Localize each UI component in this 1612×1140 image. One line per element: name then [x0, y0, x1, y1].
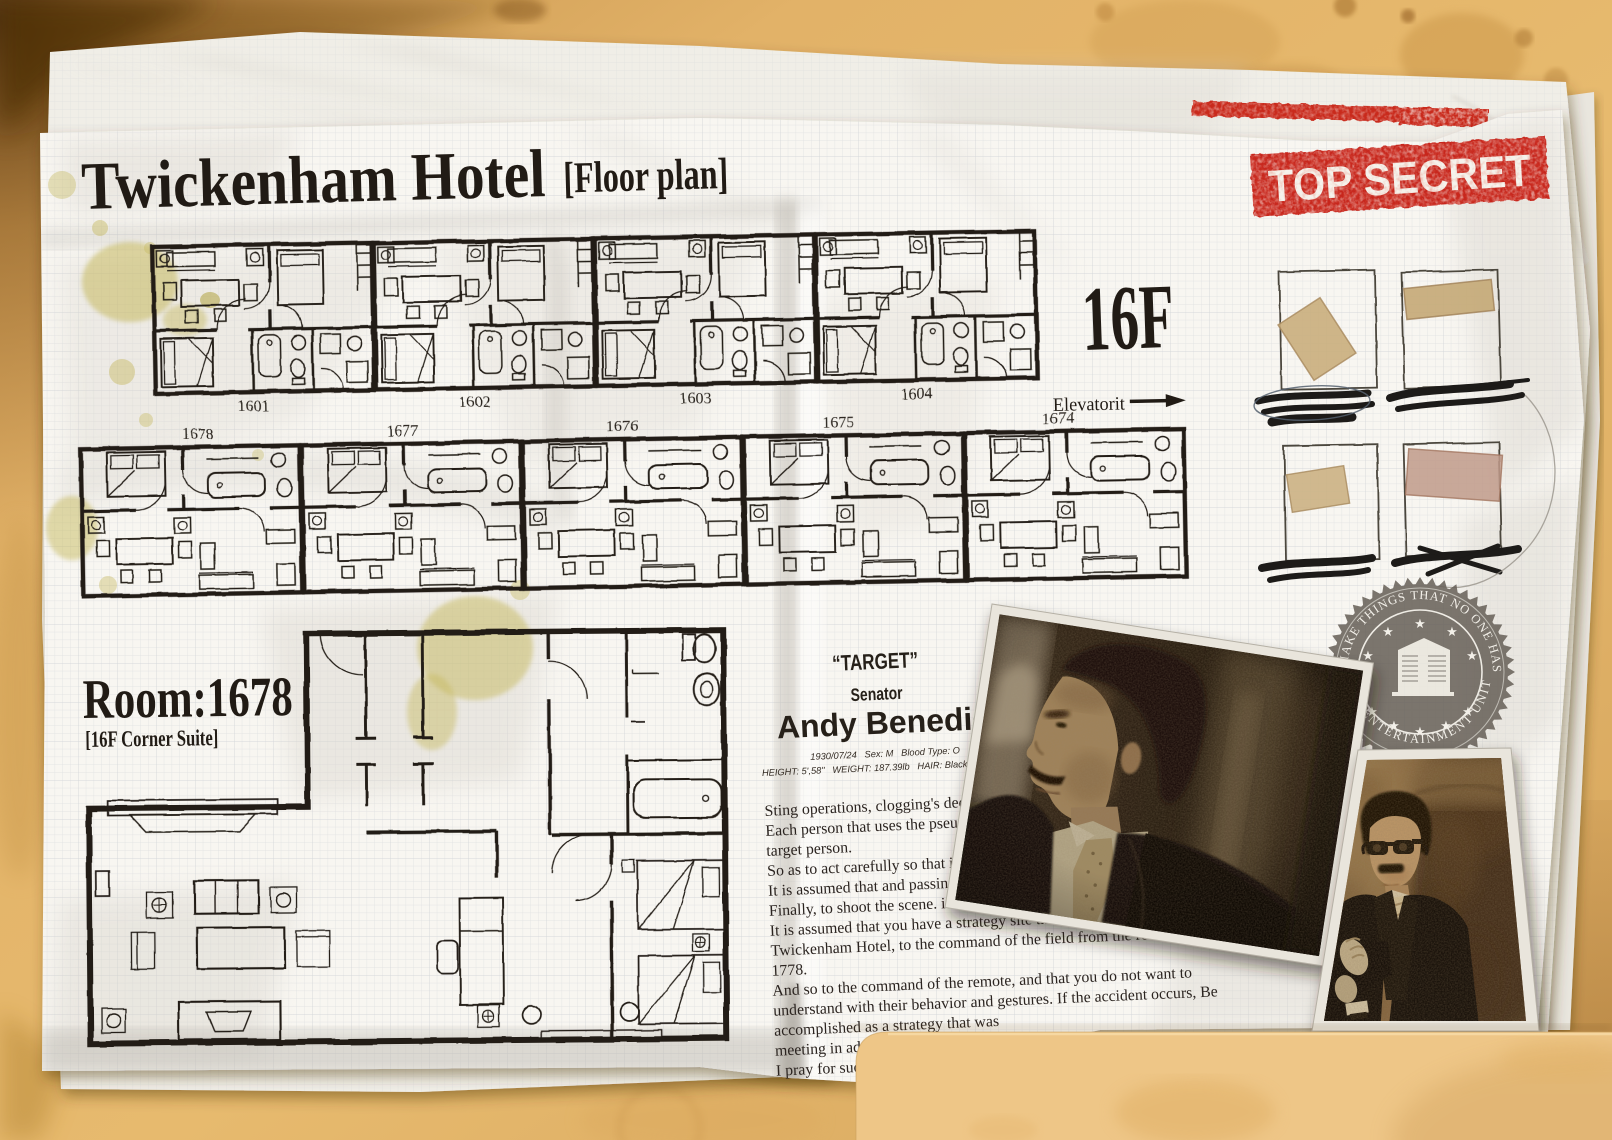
svg-text:1676: 1676	[606, 418, 638, 436]
svg-text:1677: 1677	[386, 422, 418, 440]
svg-text:★: ★	[1466, 648, 1478, 663]
svg-text:Twickenham Hotel: Twickenham Hotel	[80, 135, 546, 224]
svg-text:16F: 16F	[1080, 265, 1176, 370]
svg-text:1678: 1678	[181, 426, 213, 444]
svg-text:1601: 1601	[237, 398, 269, 416]
svg-text:1604: 1604	[900, 386, 932, 404]
svg-text:Room:1678: Room:1678	[82, 666, 293, 731]
svg-text:1675: 1675	[822, 414, 854, 432]
svg-text:Senator: Senator	[850, 683, 903, 705]
svg-text:Elevatorit: Elevatorit	[1053, 393, 1126, 416]
svg-text:1603: 1603	[679, 390, 711, 408]
svg-text:★: ★	[1388, 718, 1400, 733]
svg-text:★: ★	[1440, 718, 1452, 733]
svg-text:[16F Corner Suite]: [16F Corner Suite]	[85, 725, 218, 752]
svg-text:★: ★	[1414, 616, 1426, 631]
svg-text:★: ★	[1462, 704, 1474, 719]
svg-text:1602: 1602	[458, 394, 490, 412]
svg-text:★: ★	[1362, 648, 1374, 663]
svg-text:“TARGET”: “TARGET”	[832, 647, 919, 676]
svg-text:★: ★	[1414, 724, 1426, 739]
svg-text:1778.: 1778.	[771, 961, 807, 980]
svg-text:★: ★	[1382, 624, 1394, 639]
svg-text:[Floor plan]: [Floor plan]	[563, 149, 729, 203]
svg-text:★: ★	[1446, 624, 1458, 639]
svg-text:★: ★	[1366, 704, 1378, 719]
